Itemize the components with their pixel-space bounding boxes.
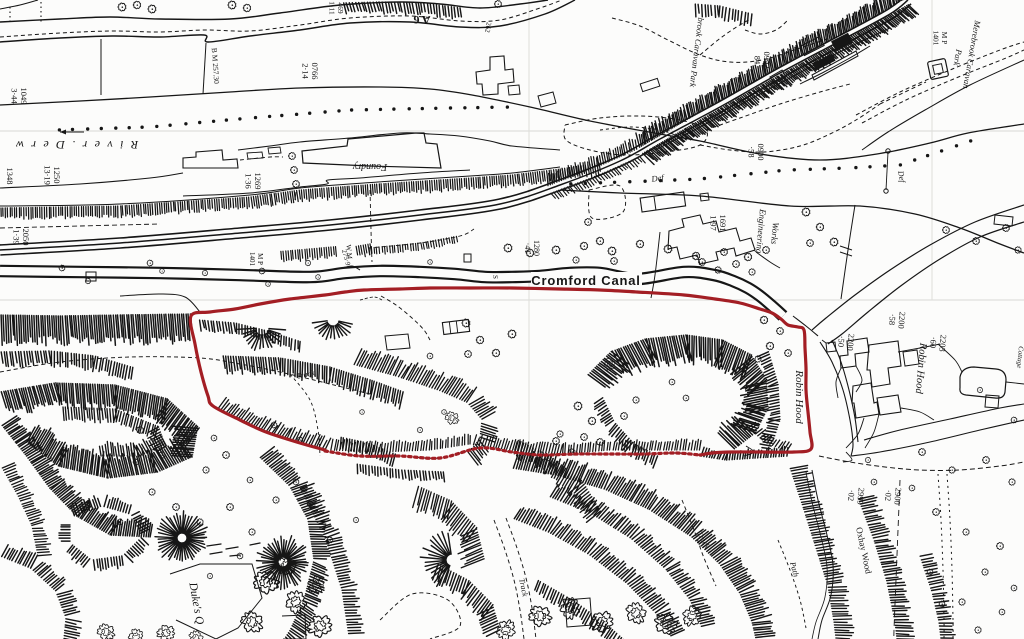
svg-text:20501·39: 20501·39 [12,229,32,246]
svg-text:Cromford Canal: Cromford Canal [531,273,640,288]
svg-text:Foundry: Foundry [352,161,388,172]
svg-text:M P1401: M P1401 [932,31,950,46]
svg-text:12691·36: 12691·36 [244,173,264,190]
svg-text:S: S [491,275,499,279]
svg-text:M P1401: M P1401 [248,252,264,267]
svg-text:10493·44: 10493·44 [10,88,30,105]
svg-text:Robin Hood: Robin Hood [793,369,805,424]
svg-text:W M: W M [344,244,353,260]
svg-text:4691·11: 4691·11 [328,1,346,15]
svg-text:R i v e r . D e r w: R i v e r . D e r w [14,138,139,152]
svg-text:1348: 1348 [5,168,15,185]
svg-text:16911·97: 16911·97 [709,215,729,232]
svg-text:125013·19: 125013·19 [43,165,63,185]
svg-text:07662·14: 07662·14 [301,63,321,80]
svg-text:Works: Works [769,222,781,245]
svg-text:A 6: A 6 [413,13,430,27]
